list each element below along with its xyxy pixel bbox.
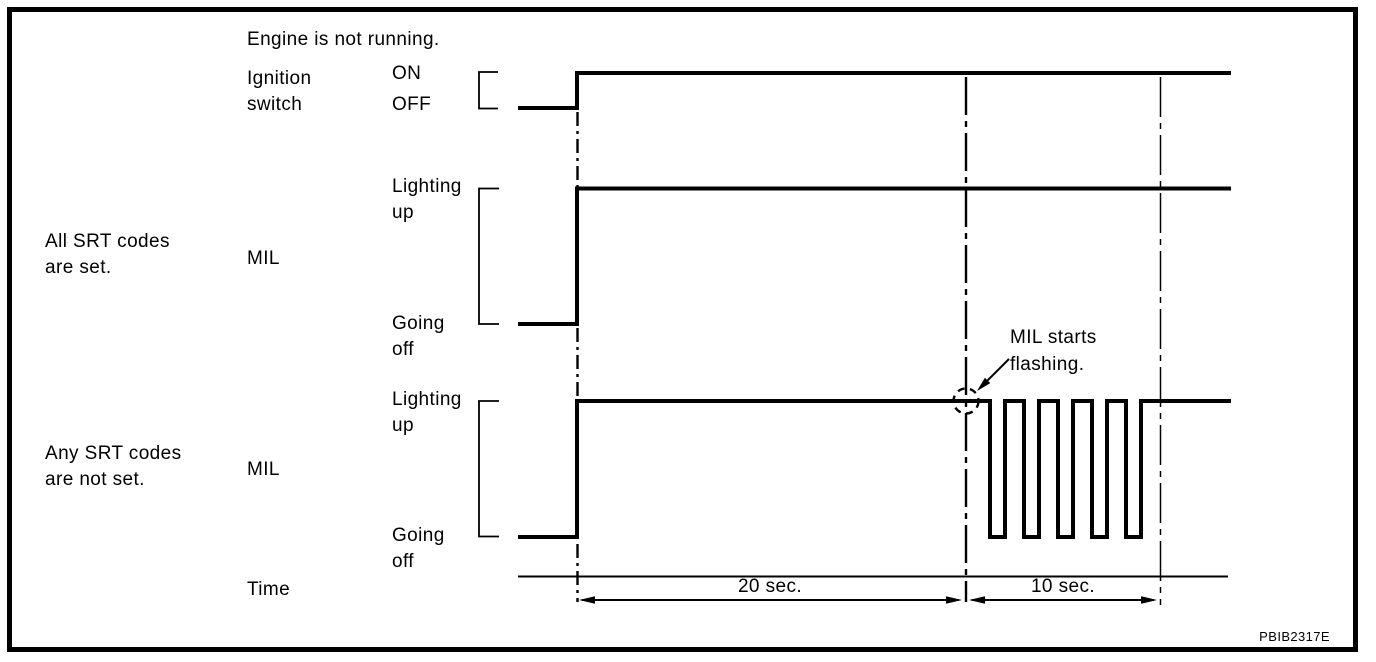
figure-code-watermark: PBIB2317E bbox=[1230, 629, 1330, 644]
signal-mil-any-not-set-waveform bbox=[518, 401, 1231, 537]
ignition-off-state-label: OFF bbox=[392, 92, 431, 118]
mil-all-set-lighting-up-label: Lighting up bbox=[392, 174, 462, 226]
group-any-srt-codes-not-set-label: Any SRT codes are not set. bbox=[45, 441, 182, 493]
ignition-on-state-label: ON bbox=[392, 61, 421, 87]
mil-all-set-label: MIL bbox=[247, 246, 280, 272]
mil-any-not-set-going-off-label: Going off bbox=[392, 523, 445, 575]
mil-any-not-set-label: MIL bbox=[247, 457, 280, 483]
time-axis-label: Time bbox=[247, 577, 290, 603]
dim-arrow-10sec-right-head bbox=[1141, 596, 1157, 604]
dim-arrow-20sec-left-head bbox=[579, 596, 595, 604]
mil-any-not-set-lighting-up-label: Lighting up bbox=[392, 387, 462, 439]
bracket-mil-all-set-states bbox=[479, 189, 499, 325]
mil-all-set-going-off-label: Going off bbox=[392, 311, 445, 363]
ignition-switch-label: Ignition switch bbox=[247, 66, 311, 118]
signal-mil-all-set-waveform bbox=[518, 189, 1231, 325]
timing-diagram-artwork bbox=[0, 0, 1376, 662]
duration-10sec-label: 10 sec. bbox=[983, 574, 1143, 600]
duration-20sec-label: 20 sec. bbox=[690, 574, 850, 600]
dim-arrow-20sec-right-head bbox=[946, 596, 962, 604]
mil-starts-flashing-annotation: MIL starts flashing. bbox=[1010, 324, 1097, 378]
bracket-mil-any-not-set-states bbox=[479, 401, 499, 537]
bracket-ignition-states bbox=[479, 72, 498, 109]
engine-note-label: Engine is not running. bbox=[247, 27, 440, 53]
signal-ignition-waveform bbox=[518, 73, 1231, 108]
group-all-srt-codes-set-label: All SRT codes are set. bbox=[45, 229, 170, 281]
timing-diagram-figure: Engine is not running. Ignition switch O… bbox=[0, 0, 1376, 662]
annotation-arrow-line bbox=[985, 359, 1009, 383]
